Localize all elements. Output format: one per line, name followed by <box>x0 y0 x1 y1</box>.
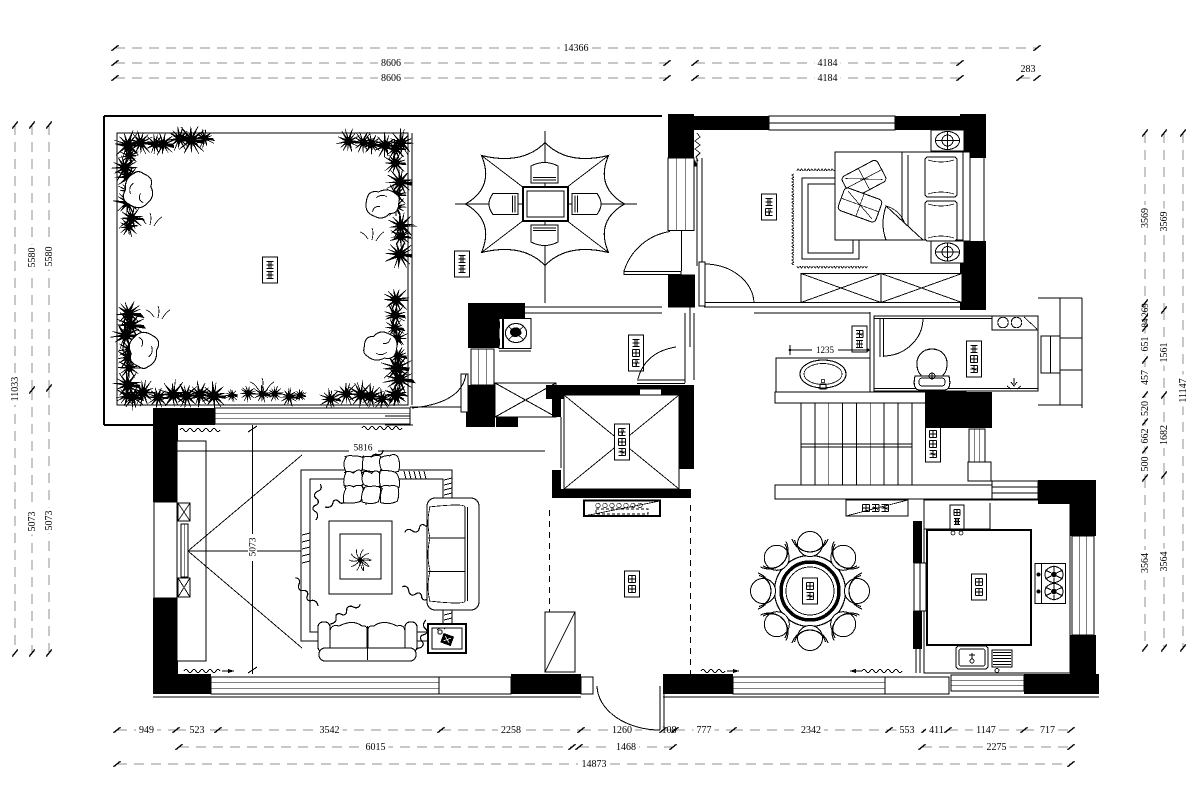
svg-text:14366: 14366 <box>564 43 589 54</box>
svg-text:5816: 5816 <box>354 444 373 454</box>
svg-text:3569: 3569 <box>1140 208 1151 228</box>
svg-text:3564: 3564 <box>1159 552 1170 572</box>
svg-text:949: 949 <box>139 725 154 736</box>
svg-text:6015: 6015 <box>366 742 386 753</box>
svg-text:777: 777 <box>697 725 712 736</box>
svg-text:523: 523 <box>190 725 205 736</box>
svg-text:1561: 1561 <box>1159 343 1170 363</box>
svg-text:1682: 1682 <box>1159 425 1170 445</box>
svg-text:3564: 3564 <box>1140 553 1151 573</box>
svg-text:5073: 5073 <box>44 511 55 531</box>
svg-text:84: 84 <box>1140 318 1150 328</box>
svg-text:11147: 11147 <box>1178 378 1189 402</box>
svg-text:1260: 1260 <box>612 725 632 736</box>
svg-text:1468: 1468 <box>616 742 636 753</box>
svg-text:14873: 14873 <box>582 759 607 770</box>
svg-text:553: 553 <box>900 725 915 736</box>
svg-text:8606: 8606 <box>381 73 401 84</box>
svg-text:662: 662 <box>1140 429 1151 444</box>
svg-text:1147: 1147 <box>976 725 996 736</box>
svg-text:651: 651 <box>1140 337 1151 352</box>
svg-text:1235: 1235 <box>816 345 835 355</box>
svg-text:2275: 2275 <box>987 742 1007 753</box>
svg-text:457: 457 <box>1140 370 1151 385</box>
svg-text:3542: 3542 <box>320 725 340 736</box>
svg-text:8606: 8606 <box>381 58 401 69</box>
svg-text:4184: 4184 <box>818 58 838 69</box>
svg-text:5073: 5073 <box>249 537 259 556</box>
svg-text:269: 269 <box>1140 303 1150 317</box>
svg-text:520: 520 <box>1140 401 1151 416</box>
svg-text:500: 500 <box>1140 457 1151 472</box>
svg-text:11033: 11033 <box>10 377 21 402</box>
svg-text:2342: 2342 <box>801 725 821 736</box>
svg-text:5580: 5580 <box>44 247 55 267</box>
svg-text:2258: 2258 <box>501 725 521 736</box>
svg-text:283: 283 <box>1021 64 1036 75</box>
svg-text:4184: 4184 <box>818 73 838 84</box>
svg-text:5073: 5073 <box>27 512 38 532</box>
svg-text:5580: 5580 <box>27 248 38 268</box>
svg-text:411: 411 <box>929 725 944 736</box>
svg-text:3569: 3569 <box>1159 212 1170 232</box>
svg-text:717: 717 <box>1040 725 1055 736</box>
